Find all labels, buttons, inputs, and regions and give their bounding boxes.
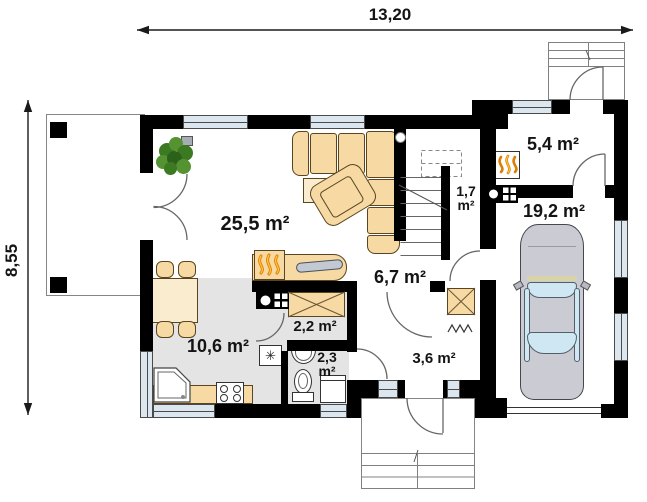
car-trunk-line — [528, 246, 576, 247]
dimension-line-left — [24, 100, 32, 415]
wall-entry — [460, 380, 480, 398]
terrace — [46, 114, 145, 296]
terrace-column — [50, 277, 67, 293]
wall-stair-west — [394, 129, 406, 241]
stairs-area-unit: m² — [449, 198, 483, 212]
wall-bottom — [347, 380, 361, 418]
plant — [155, 135, 197, 181]
washing-machine — [320, 375, 346, 403]
bathroom-area-unit: m² — [307, 364, 347, 378]
dining-chair — [156, 261, 174, 278]
washer-panel — [321, 380, 345, 381]
car — [518, 224, 586, 401]
room-label-pantry: 2,2 m² — [280, 318, 350, 335]
entry-sidelight-window — [378, 380, 398, 398]
coat-hooks-zigzag — [448, 325, 472, 332]
room-label-kitchen: 10,6 m² — [158, 336, 278, 357]
burner-icon — [233, 394, 241, 402]
boiler-garage-door-arc — [573, 154, 605, 186]
car-side-window — [524, 288, 530, 362]
garage-door-panel — [507, 407, 601, 414]
toilet-tank — [292, 392, 314, 402]
boiler-exterior-door-opening — [570, 100, 603, 114]
dimension-label-height: 8,55 — [2, 234, 24, 286]
room-label-garage: 19,2 m² — [494, 201, 614, 222]
wall-boiler-garage-stub — [605, 185, 614, 198]
furnace — [494, 151, 520, 179]
car-rear-window — [527, 282, 577, 298]
vestibule-door-arc — [387, 292, 432, 337]
car-parcel-strip — [527, 276, 577, 281]
corner-window — [140, 351, 153, 418]
window — [183, 115, 248, 129]
dining-table — [152, 278, 198, 323]
entry-sidelight-window — [447, 380, 460, 398]
burner-icon — [220, 394, 228, 402]
plant-leaf — [176, 159, 191, 174]
room-label-living: 25,5 m² — [195, 213, 315, 236]
bathroom-window — [320, 404, 347, 418]
entry-steps — [362, 450, 475, 489]
wall-bath-west — [281, 351, 288, 404]
stairs-area-value: 1,7 — [449, 184, 483, 198]
fireplace — [254, 250, 285, 280]
wall-garage-stub — [601, 404, 628, 418]
window — [310, 115, 365, 129]
car-side-window — [574, 288, 580, 362]
terrace-door-arc — [154, 207, 188, 241]
wardrobe — [447, 288, 475, 315]
dimension-label-width: 13,20 — [330, 5, 450, 25]
wall-garage-west — [480, 280, 496, 404]
dimension-line-top — [137, 26, 633, 34]
sofa-cushion — [310, 133, 337, 174]
burner-icon — [233, 385, 241, 393]
dining-chair — [178, 261, 196, 278]
boiler-exterior-door-arc — [570, 67, 603, 100]
entry-porch — [361, 398, 475, 454]
window — [614, 313, 628, 361]
room-label-bathroom: 2,3 m² — [307, 350, 347, 378]
oven-box — [256, 292, 289, 309]
armchair-seat — [319, 175, 365, 219]
room-label-stairs: 1,7 m² — [449, 184, 483, 212]
wall-counter-band — [252, 281, 347, 292]
burner-icon — [220, 385, 228, 393]
room-label-boiler: 5,4 m² — [493, 134, 613, 155]
wall-bottom — [215, 404, 320, 418]
exterior-steps-top — [549, 43, 625, 100]
bathroom-area-value: 2,3 — [307, 350, 347, 364]
window — [512, 100, 552, 114]
room-label-vestibule: 3,6 m² — [399, 350, 469, 367]
terrace-column — [50, 122, 67, 138]
plant-leaf — [164, 162, 177, 175]
column-marker — [395, 132, 406, 143]
wall-entry — [361, 380, 378, 398]
pantry-shelf — [288, 292, 345, 317]
car-windshield — [527, 332, 577, 354]
sofa-armrest — [292, 131, 309, 176]
wall-entry-stub — [398, 380, 405, 398]
cooktop — [216, 382, 244, 404]
room-label-hall: 6,7 m² — [340, 267, 460, 288]
bathroom-door-arc — [357, 349, 387, 379]
corner-window — [153, 404, 215, 418]
window — [614, 220, 628, 278]
floor-plan: ✳ — [0, 0, 647, 502]
terrace-door-opening — [140, 173, 153, 240]
